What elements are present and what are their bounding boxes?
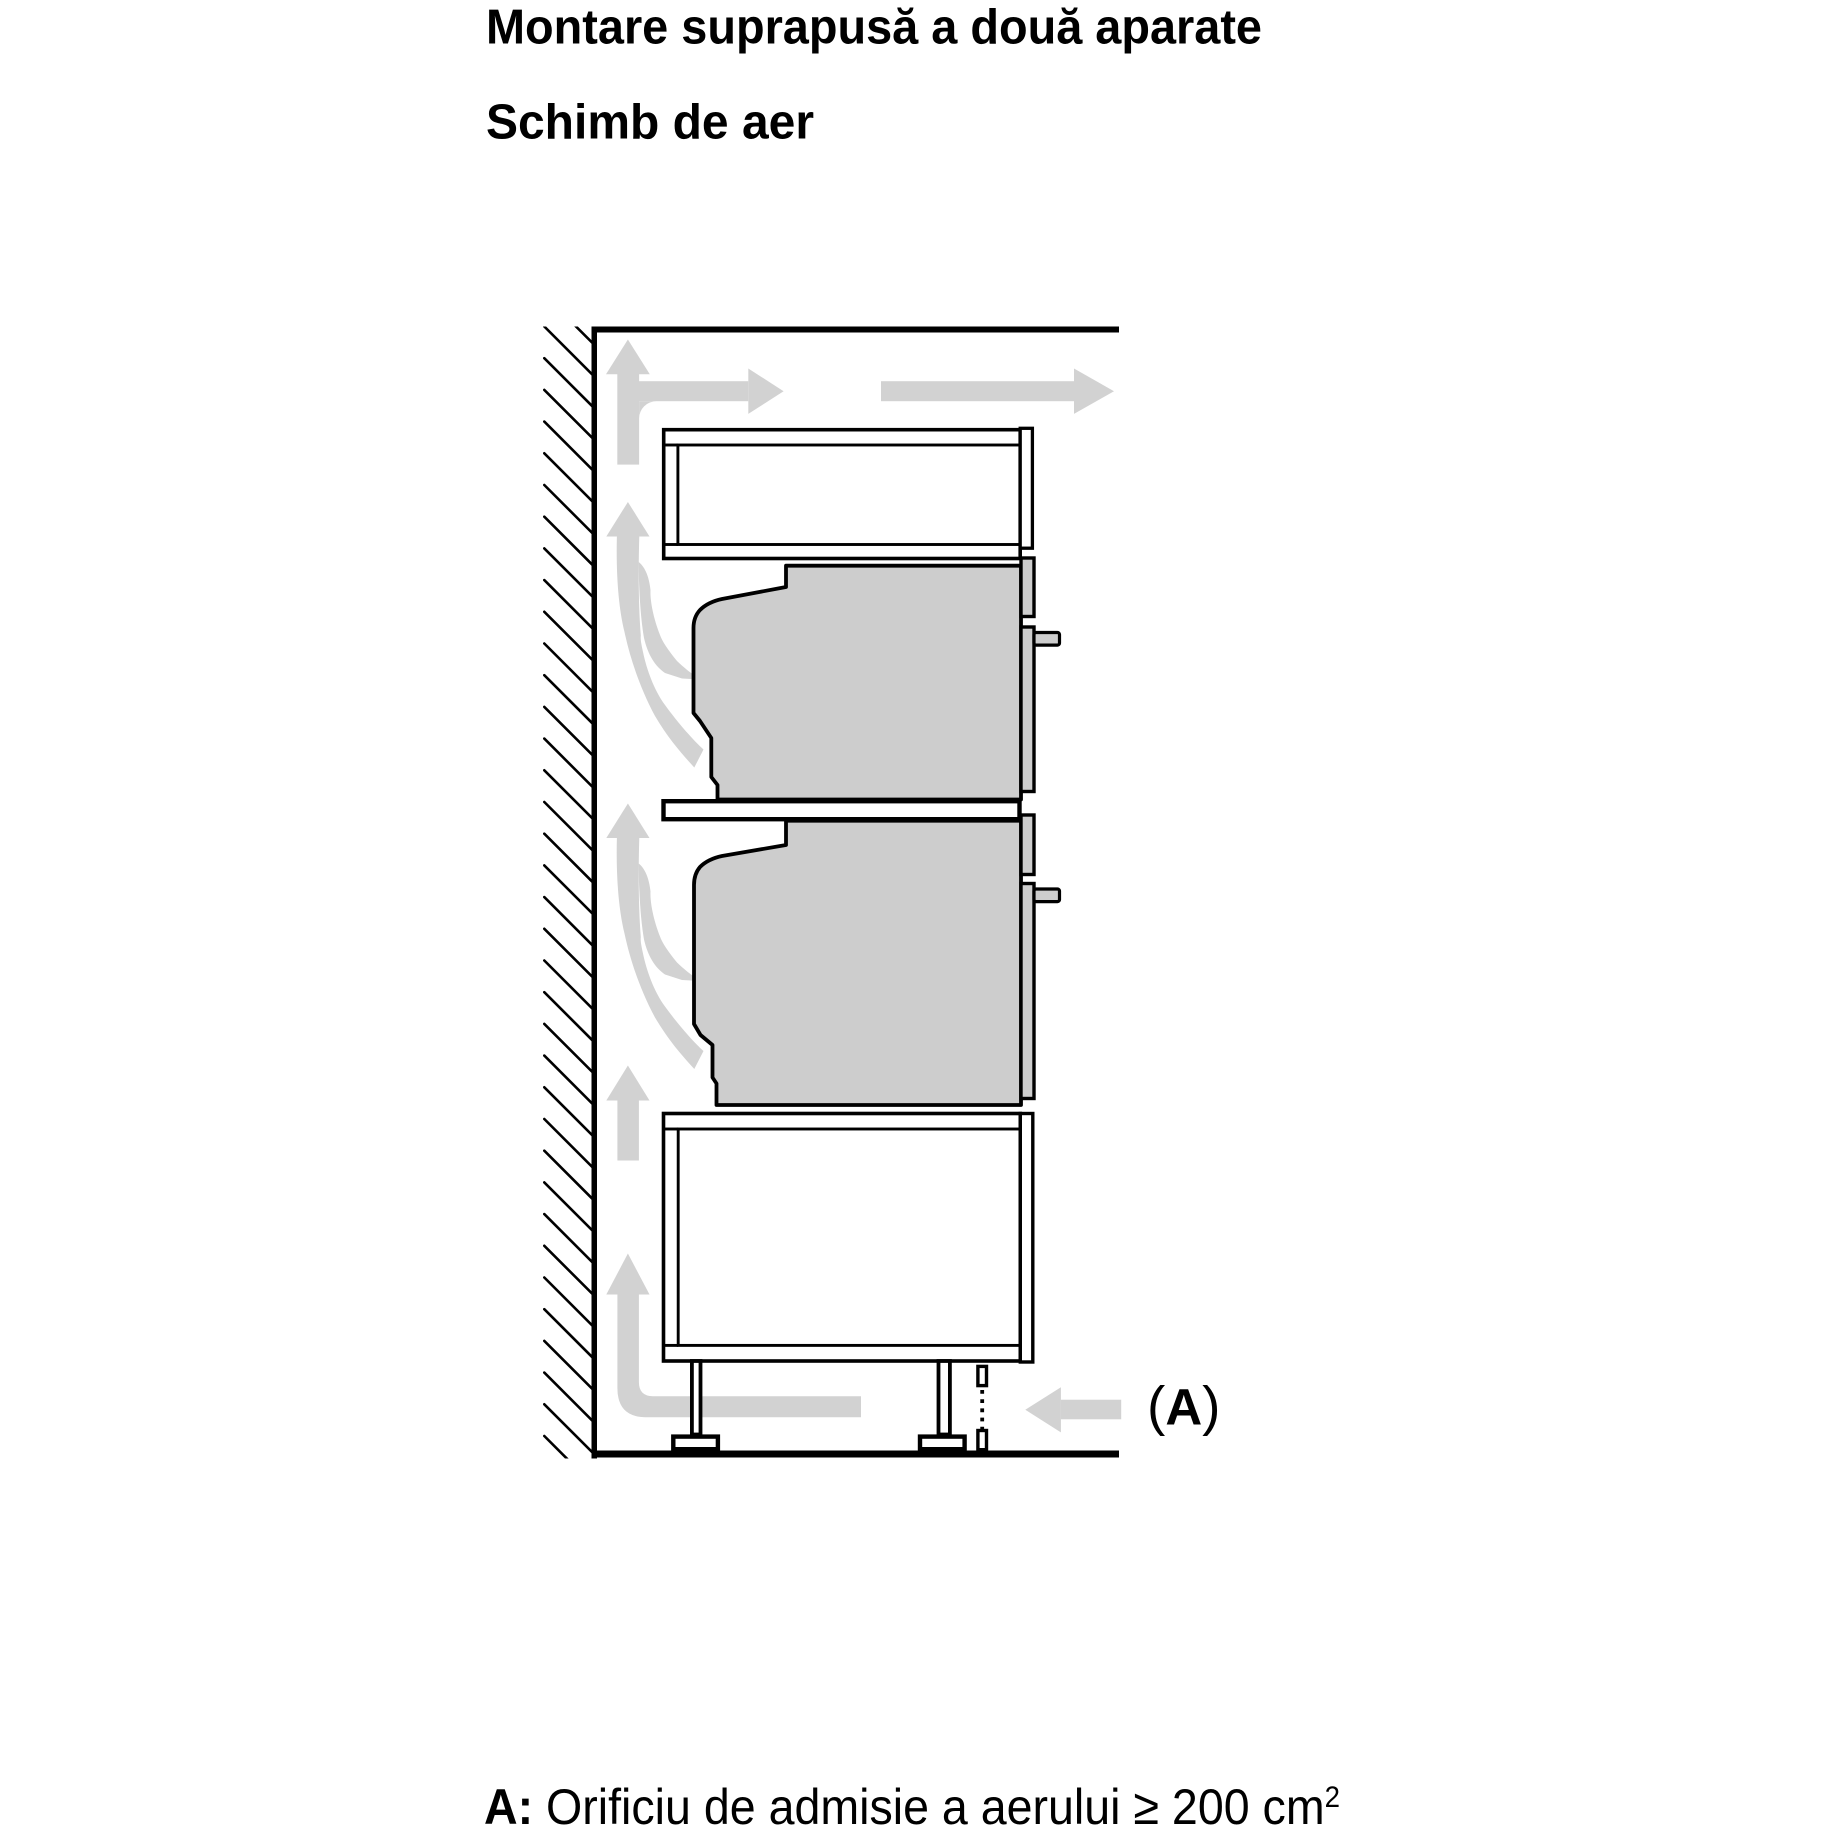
svg-text:(A): (A) (1147, 1375, 1221, 1437)
svg-text:A: Orificiu de admisie a aerul: A: Orificiu de admisie a aerului ≥ 200 c… (484, 1778, 1340, 1832)
svg-text:Montare suprapusă a două apara: Montare suprapusă a două aparate (486, 0, 1262, 55)
svg-text:Schimb de aer: Schimb de aer (486, 95, 814, 150)
